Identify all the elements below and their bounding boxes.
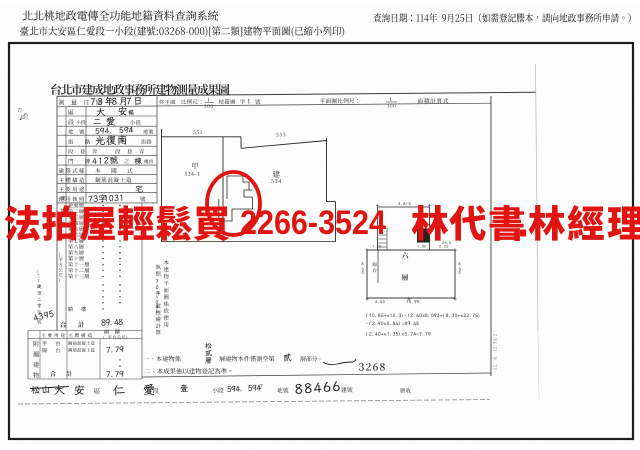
svg-text:2266-3524: 2266-3524 (240, 204, 386, 242)
